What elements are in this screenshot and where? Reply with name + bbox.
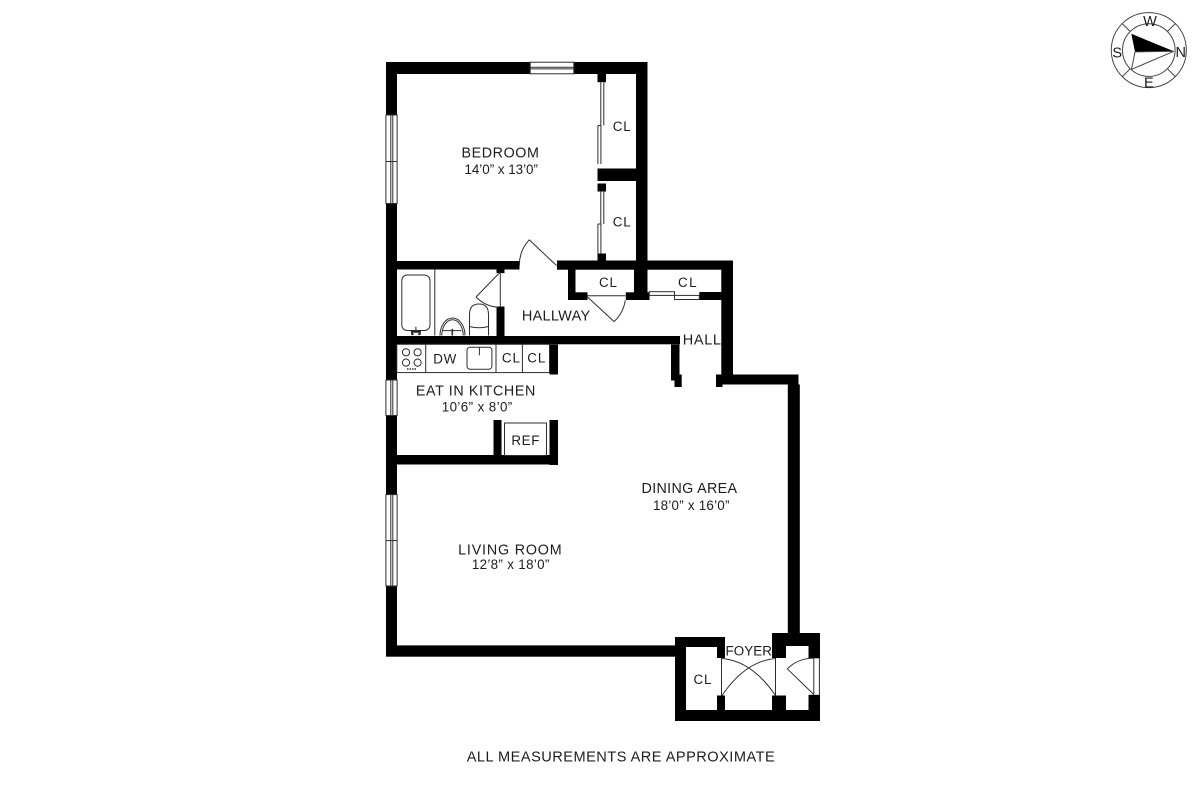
svg-text:CL: CL bbox=[613, 119, 631, 134]
svg-text:CL: CL bbox=[678, 275, 697, 290]
svg-text:BEDROOM: BEDROOM bbox=[461, 146, 539, 162]
svg-text:E: E bbox=[1144, 76, 1154, 92]
svg-text:CL: CL bbox=[599, 275, 617, 290]
svg-text:N: N bbox=[1176, 45, 1186, 61]
svg-text:EAT IN KITCHEN: EAT IN KITCHEN bbox=[416, 383, 535, 399]
svg-text:REF: REF bbox=[511, 433, 539, 448]
svg-text:S: S bbox=[1112, 46, 1122, 62]
svg-text:10’6” x 8’0”: 10’6” x 8’0” bbox=[442, 400, 513, 415]
svg-text:LIVING ROOM: LIVING ROOM bbox=[458, 542, 562, 558]
svg-text:18’0” x 16’0”: 18’0” x 16’0” bbox=[653, 498, 730, 513]
svg-text:CL: CL bbox=[527, 350, 545, 365]
svg-text:12’8” x 18’0”: 12’8” x 18’0” bbox=[472, 557, 549, 572]
svg-text:CL: CL bbox=[502, 350, 520, 365]
svg-text:ALL MEASUREMENTS ARE APPROXIMA: ALL MEASUREMENTS ARE APPROXIMATE bbox=[467, 750, 775, 766]
svg-text:FOYER: FOYER bbox=[725, 643, 772, 658]
svg-text:CL: CL bbox=[613, 215, 631, 230]
svg-text:DW: DW bbox=[433, 352, 456, 367]
svg-text:14’0” x 13’0”: 14’0” x 13’0” bbox=[464, 162, 538, 177]
svg-text:W: W bbox=[1143, 14, 1157, 30]
svg-text:DINING AREA: DINING AREA bbox=[642, 481, 738, 497]
svg-text:HALLWAY: HALLWAY bbox=[522, 308, 591, 324]
svg-text:HALL: HALL bbox=[683, 332, 721, 348]
svg-text:CL: CL bbox=[694, 672, 712, 687]
